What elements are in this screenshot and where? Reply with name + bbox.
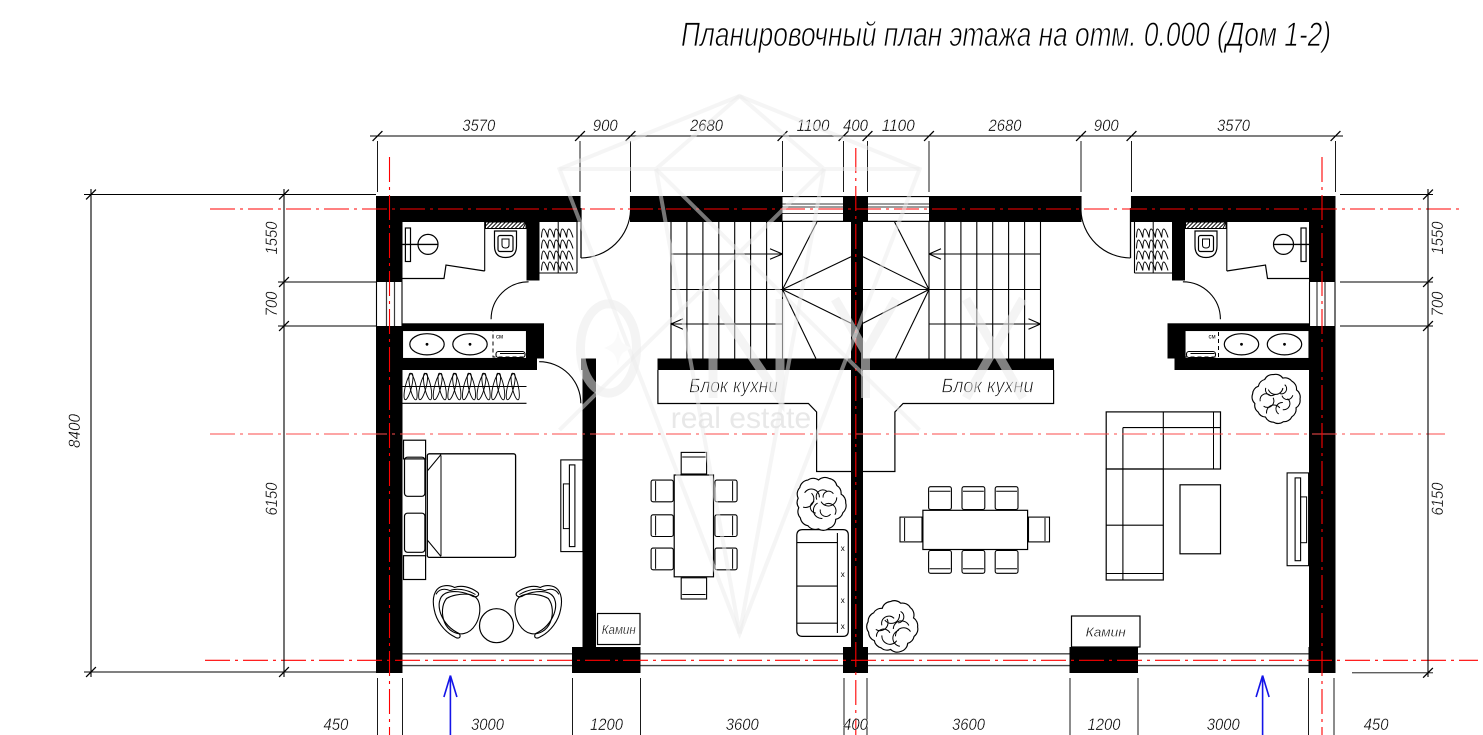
svg-text:1550: 1550 [262,221,281,254]
svg-text:real estate: real estate [671,402,811,435]
svg-text:см: см [1208,335,1215,341]
svg-text:x: x [841,596,845,605]
svg-text:6150: 6150 [1428,482,1447,515]
svg-text:3000: 3000 [471,715,504,734]
svg-text:700: 700 [1428,291,1447,316]
svg-text:3570: 3570 [462,116,495,135]
svg-text:x: x [841,544,845,553]
svg-text:450: 450 [1364,715,1389,734]
svg-text:900: 900 [1094,116,1119,135]
svg-text:400: 400 [843,116,868,135]
svg-text:3000: 3000 [1207,715,1240,734]
svg-text:400: 400 [843,715,868,734]
svg-text:1200: 1200 [1088,715,1121,734]
svg-text:Планировочный план этажа на от: Планировочный план этажа на отм. 0.000 (… [681,16,1331,54]
svg-text:3600: 3600 [952,715,985,734]
svg-text:700: 700 [262,291,281,316]
svg-text:Камин: Камин [602,623,636,637]
svg-text:3570: 3570 [1217,116,1250,135]
svg-text:1100: 1100 [882,116,915,135]
svg-text:8400: 8400 [65,414,84,448]
svg-text:1200: 1200 [590,715,623,734]
svg-text:1550: 1550 [1428,221,1447,254]
svg-text:900: 900 [593,116,618,135]
svg-text:6150: 6150 [262,482,281,515]
svg-text:450: 450 [323,715,348,734]
svg-text:x: x [841,570,845,579]
svg-text:см: см [496,335,503,341]
svg-text:Камин: Камин [1086,626,1126,640]
svg-text:3600: 3600 [726,715,759,734]
svg-text:x: x [841,622,845,631]
svg-text:2680: 2680 [988,116,1022,135]
